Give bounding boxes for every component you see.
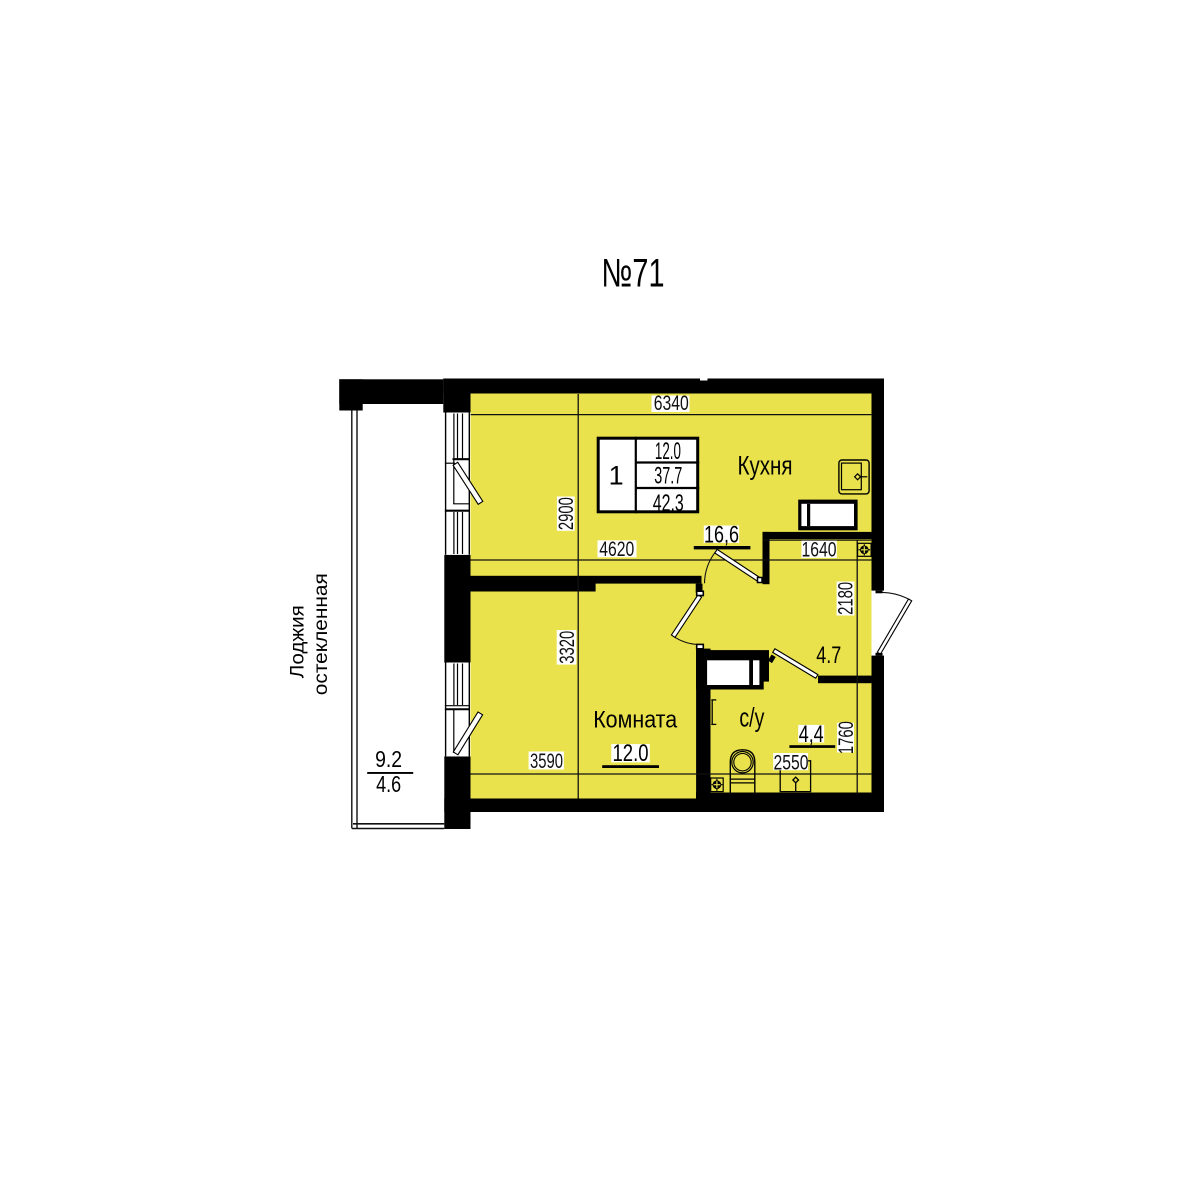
svg-text:1760: 1760: [835, 721, 858, 754]
svg-text:3320: 3320: [556, 631, 579, 664]
svg-text:4.6: 4.6: [376, 771, 401, 797]
svg-text:42.3: 42.3: [653, 490, 684, 517]
svg-text:12.0: 12.0: [613, 740, 649, 767]
svg-text:1640: 1640: [802, 538, 837, 561]
svg-text:16,6: 16,6: [704, 521, 739, 548]
svg-text:4.7: 4.7: [816, 642, 841, 669]
svg-text:2550: 2550: [774, 752, 809, 775]
svg-text:2180: 2180: [834, 582, 857, 615]
svg-text:с/у: с/у: [739, 702, 765, 732]
svg-text:Кухня: Кухня: [738, 451, 793, 481]
svg-text:1: 1: [609, 461, 624, 491]
svg-text:Комната: Комната: [593, 707, 677, 734]
svg-text:2900: 2900: [555, 497, 578, 530]
svg-text:12.0: 12.0: [655, 438, 681, 465]
svg-text:4620: 4620: [599, 538, 634, 561]
svg-text:№71: №71: [602, 252, 665, 296]
svg-text:остекленная: остекленная: [310, 573, 332, 695]
svg-text:9.2: 9.2: [375, 746, 402, 772]
svg-text:37.7: 37.7: [654, 463, 682, 490]
svg-text:3590: 3590: [530, 750, 563, 773]
svg-text:Лоджия: Лоджия: [287, 605, 309, 678]
svg-text:4,4: 4,4: [799, 721, 824, 748]
svg-text:6340: 6340: [654, 392, 689, 415]
